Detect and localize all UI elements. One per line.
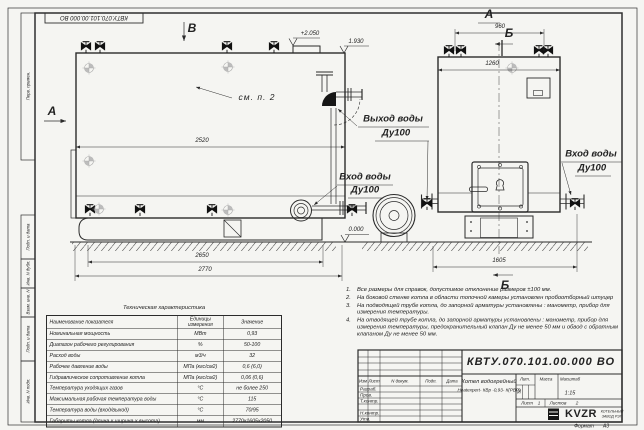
tb-col-podp: Подп.: [425, 379, 436, 384]
tb-sheet-value: 1: [538, 401, 541, 406]
kvzr-logo-icon: [548, 409, 559, 421]
note-item: 2.На боковой стенке котла в области топо…: [346, 294, 622, 301]
doc-number: КВТУ.070.101.00.000 ВО: [467, 356, 615, 368]
notes-list: 1.Все размеры для справок, допустимое от…: [346, 286, 622, 338]
tech-cell: мм: [177, 416, 223, 426]
tech-cell: Температура воды (вход/выход): [47, 405, 177, 415]
tech-table-title: Техническая характеристика: [46, 304, 282, 315]
tech-cell: 0,06 (0,6): [223, 372, 281, 382]
tech-cell: %: [177, 339, 223, 349]
tech-cell: 115: [223, 394, 281, 404]
dim-1260: 1260: [485, 60, 498, 67]
tech-cell: Диапазон рабочего регулирования: [47, 339, 177, 349]
margin-label: Инв. N подл.: [26, 378, 31, 403]
smoke-exhauster: [373, 195, 415, 243]
elevation-mid: 1.930: [348, 38, 363, 45]
note-text: На боковой стенке котла в области топочн…: [357, 294, 622, 301]
inlet-side-callout-dn: Ду100: [351, 185, 379, 196]
note-text: На подводящей трубе котла, до запорной а…: [357, 302, 622, 316]
outlet-callout-dn: Ду100: [382, 128, 410, 139]
tb-lit-label: Лит.: [520, 377, 530, 382]
see-item-callout: см. п. 2: [239, 92, 276, 102]
tb-col-izm: Изм: [359, 379, 367, 384]
tech-cell: °С: [177, 394, 223, 404]
tb-col-list: Лист: [368, 379, 379, 384]
tb-sheet-label: Лист: [521, 401, 533, 406]
tb-sign-prov: Пров.: [360, 393, 372, 398]
note-number: 1.: [346, 286, 357, 293]
valves: [81, 42, 579, 216]
tb-sign-utv: Утв.: [360, 417, 370, 422]
tech-cell: Номинальная мощность: [47, 329, 177, 339]
format-label: Формат: [574, 423, 594, 429]
top-stamp: КВТУ.070.101.00.000 ВО: [60, 15, 128, 22]
tech-cell: °С: [177, 405, 223, 415]
tech-col-header: Единицы измерения: [177, 316, 223, 328]
tech-cell: 0,93: [223, 329, 281, 339]
kvzr-logo-text: KVZR: [565, 408, 597, 420]
margin-label: Взам. инв. N: [26, 289, 31, 314]
product-name: Котел водогрейный: [461, 378, 516, 385]
note-item: 1.Все размеры для справок, допустимое от…: [346, 286, 622, 293]
view-marker-a-side: А: [48, 104, 57, 118]
tech-cell: МПа (кгс/см2): [177, 361, 223, 371]
inlet-front-callout-dn: Ду100: [578, 163, 606, 174]
dim-2520: 2520: [195, 137, 208, 144]
tb-col-data: Дата: [446, 379, 457, 384]
dim-960: 960: [495, 23, 505, 30]
tech-col-header: Наименование показателя: [47, 316, 177, 328]
tech-cell: 32: [223, 350, 281, 360]
section-marker-b-top: Б: [505, 26, 514, 40]
tb-sheets-value: 2: [576, 401, 579, 406]
outlet-callout: Выход воды: [363, 114, 423, 125]
note-text: Все размеры для справок, допустимое откл…: [357, 286, 622, 293]
tech-cell: Габариты котла (длина х ширина х высота): [47, 416, 177, 426]
margin-label: Подп. и дата: [26, 326, 31, 353]
note-item: 4.На отводящей трубе котла, до запорной …: [346, 317, 622, 338]
view-marker-a-top: А: [485, 7, 494, 21]
kvzr-logo-sub: КОТЕЛЬНЫЙ: [601, 409, 624, 414]
note-text: На отводящей трубе котла, до запорной ар…: [357, 317, 622, 338]
note-number: 3.: [346, 302, 357, 316]
elevation-top: +2.050: [301, 30, 320, 37]
tb-sign-razrab: Разраб.: [360, 387, 377, 392]
tech-cell: 50-100: [223, 339, 281, 349]
tb-sign-tkontr: Т.контр.: [360, 399, 379, 404]
tech-cell: не более 250: [223, 383, 281, 393]
product-model: Heatexpert- КВр -0,93- К(РВР): [457, 388, 520, 393]
kvzr-logo-sub: ЗАВОД РЭП: [602, 414, 623, 419]
ground-hatch: [70, 242, 592, 251]
tech-cell: °С: [177, 383, 223, 393]
tb-scale-label: Масштаб: [560, 377, 580, 382]
tech-cell: 2770х1605х2050: [223, 416, 281, 426]
view-marker-b: В: [188, 21, 197, 35]
tech-cell: Температура уходящих газов: [47, 383, 177, 393]
inlet-side-callout: Вход воды: [339, 172, 390, 183]
dim-2650: 2650: [195, 252, 208, 259]
format-value: А3: [603, 423, 609, 429]
inlet-front-callout: Вход воды: [565, 149, 616, 160]
tech-cell: Расход воды: [47, 350, 177, 360]
tb-scale-value: 1:15: [565, 390, 576, 396]
tech-cell: Максимальная рабочая температура воды: [47, 394, 177, 404]
drawing-sheet: КВТУ.070.101.00.000 ВО Перв. примен. Под…: [0, 0, 644, 430]
margin-label: Перв. примен.: [26, 72, 31, 101]
tech-cell: 70/95: [223, 405, 281, 415]
dim-2770: 2770: [198, 266, 211, 273]
elevation-zero: 0.000: [348, 226, 363, 233]
boiler-side-view: [71, 46, 366, 240]
tech-table: Техническая характеристика Наименование …: [46, 304, 282, 428]
dim-1605: 1605: [492, 257, 505, 264]
note-number: 2.: [346, 294, 357, 301]
note-item: 3.На подводящей трубе котла, до запорной…: [346, 302, 622, 316]
tech-cell: Гидравлическое сопротивление котла: [47, 372, 177, 382]
tech-cell: м3/ч: [177, 350, 223, 360]
tech-cell: 0,6 (6,0): [223, 361, 281, 371]
boiler-front-view: [422, 42, 585, 254]
tech-col-header: Значение: [223, 316, 281, 328]
margin-label: Инв. N дубл.: [26, 261, 31, 286]
tb-col-ndokum: N докум.: [391, 379, 408, 384]
tb-sheets-label: Листов: [550, 401, 567, 406]
tb-mass-label: Масса: [540, 377, 553, 382]
tech-cell: МВт: [177, 329, 223, 339]
tech-cell: МПа (кгс/см2): [177, 372, 223, 382]
margin-label: Подп. и дата: [26, 224, 31, 251]
tech-cell: Рабочее давление воды: [47, 361, 177, 371]
tb-lit-value: И: [517, 389, 521, 395]
tb-sign-nkontr: Н.контр.: [360, 411, 379, 416]
door-lock-icon: [496, 180, 504, 190]
note-number: 4.: [346, 317, 357, 338]
